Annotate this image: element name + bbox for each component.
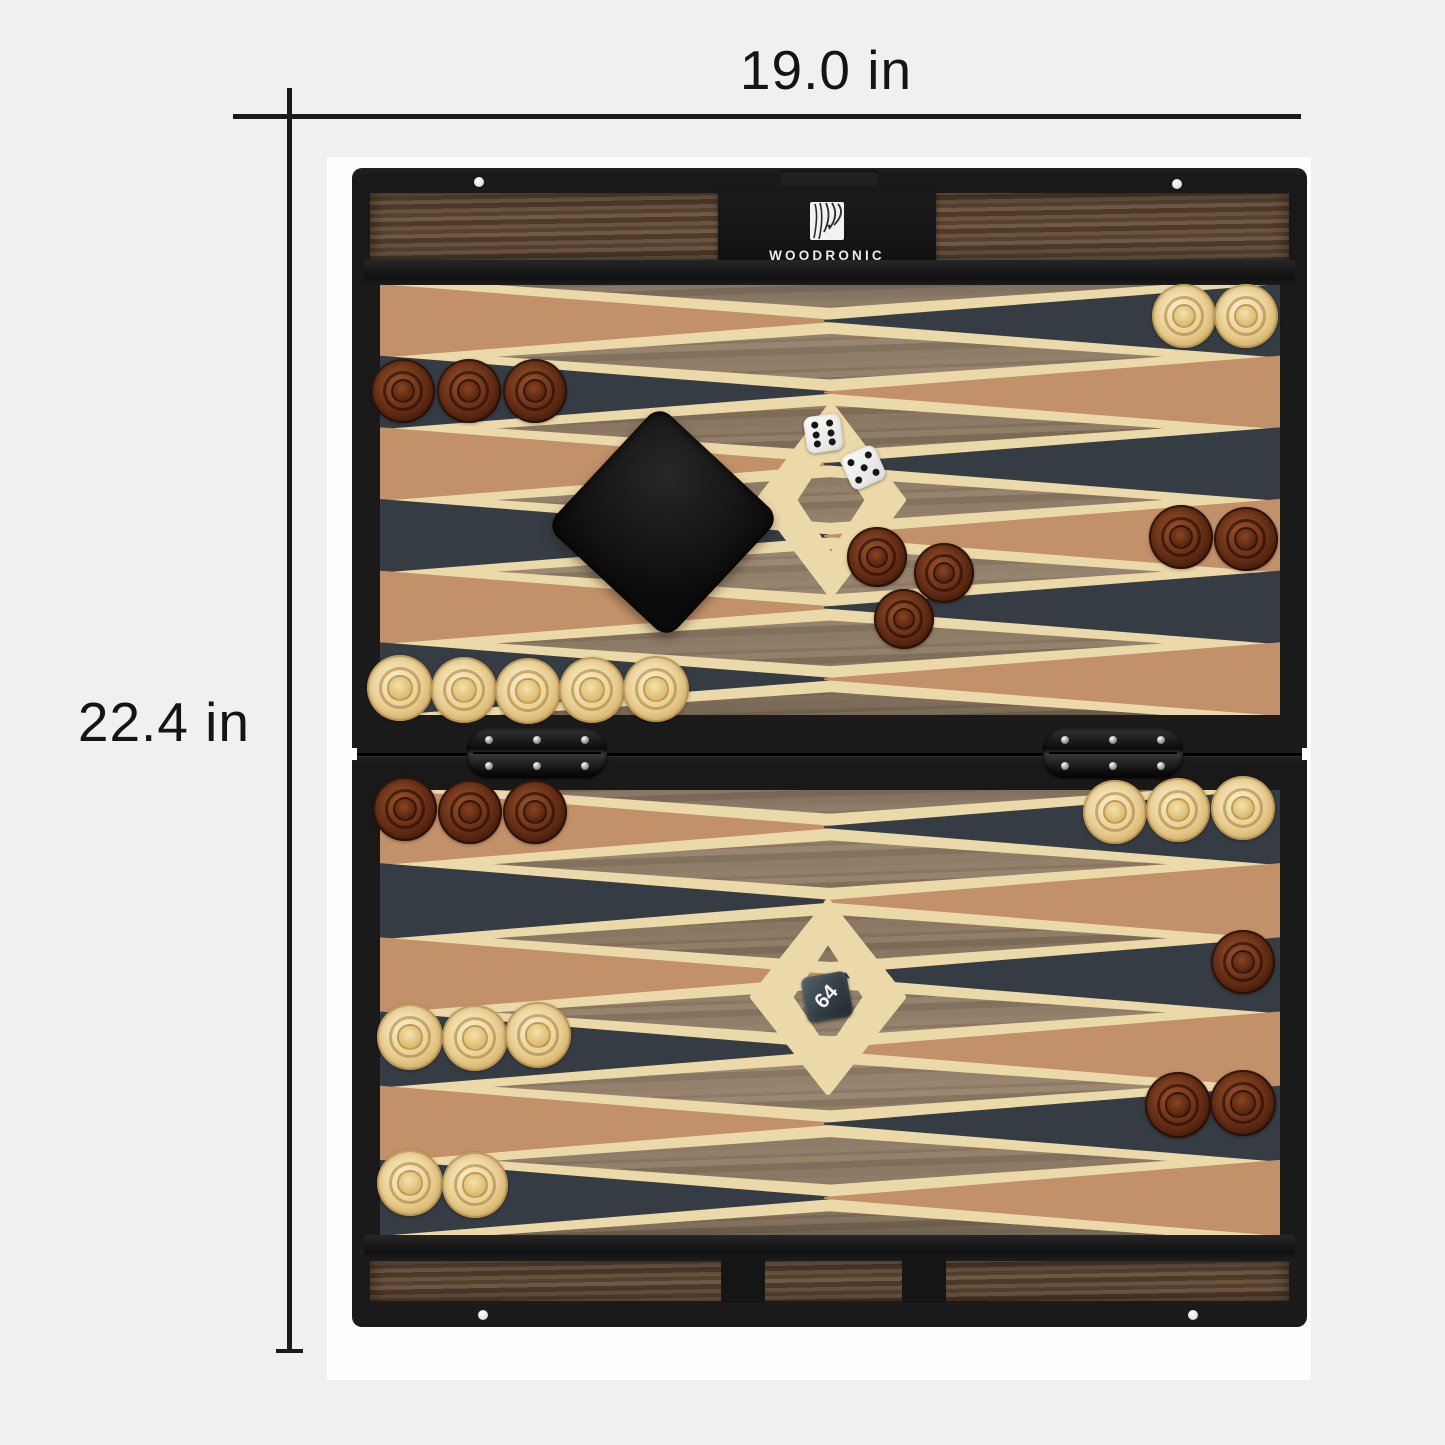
- checker-hub: [643, 676, 668, 701]
- checker-cream: [1152, 284, 1216, 348]
- checker-hub: [451, 677, 476, 702]
- hinge-screw: [1109, 736, 1117, 744]
- die-face-6: [802, 412, 844, 454]
- die-pip: [826, 428, 834, 436]
- frame-screw-dot: [1188, 1310, 1198, 1320]
- fold-seam-notch: [351, 748, 357, 760]
- die-pip: [810, 421, 818, 429]
- checker-cream: [495, 658, 561, 724]
- checker-brown: [1210, 1070, 1276, 1136]
- width-dimension-line: [233, 114, 1301, 119]
- checker-hub: [387, 675, 412, 700]
- checker-cream: [1214, 284, 1278, 348]
- doubling-cube-value: 64: [810, 980, 843, 1013]
- hinge-screw: [581, 762, 589, 770]
- checker-brown: [503, 780, 567, 844]
- checker-hub: [393, 797, 417, 821]
- die-pip: [813, 440, 821, 448]
- checker-hub: [523, 379, 547, 403]
- top-checker-rail: [364, 260, 1295, 285]
- checker-brown: [438, 780, 502, 844]
- hinge-screw: [1157, 762, 1165, 770]
- checker-brown: [1214, 507, 1278, 571]
- hinge-screw: [581, 736, 589, 744]
- checker-brown: [874, 589, 934, 649]
- checker-brown: [1211, 930, 1275, 994]
- hinge-screw: [485, 736, 493, 744]
- checker-hub: [457, 379, 481, 403]
- board-top-half: WOODRONIC: [352, 168, 1307, 755]
- checker-cream: [1146, 778, 1210, 842]
- checker-cream: [367, 655, 433, 721]
- hinge-screw: [1061, 762, 1069, 770]
- checker-hub: [462, 1025, 487, 1050]
- height-dimension-line: [287, 88, 292, 1353]
- checker-hub: [515, 678, 540, 703]
- width-dimension-label: 19.0 in: [646, 38, 1006, 102]
- checker-cream: [623, 656, 689, 722]
- checker-hub: [579, 677, 604, 702]
- checker-hub: [1166, 798, 1190, 822]
- die-pip: [846, 458, 855, 467]
- checker-cream: [442, 1152, 508, 1218]
- hinge-screw: [533, 736, 541, 744]
- hinge-screw: [1061, 736, 1069, 744]
- checker-brown: [847, 527, 907, 587]
- checker-cream: [442, 1005, 508, 1071]
- checker-hub: [1234, 527, 1258, 551]
- die-pip: [858, 462, 867, 471]
- hinge-screw: [485, 762, 493, 770]
- die-pip: [812, 430, 820, 438]
- checker-hub: [458, 800, 482, 824]
- checker-brown: [373, 777, 437, 841]
- bottom-storage-strip: [370, 1261, 1289, 1301]
- doubling-cube: 64: [800, 970, 853, 1023]
- checker-hub: [1231, 950, 1255, 974]
- checker-hub: [1165, 1092, 1190, 1117]
- checker-cream: [505, 1002, 571, 1068]
- checker-hub: [1230, 1090, 1255, 1115]
- fold-hinge: [467, 728, 607, 778]
- checker-brown: [914, 543, 974, 603]
- hinge-screw: [1109, 762, 1117, 770]
- checker-hub: [525, 1022, 550, 1047]
- frame-screw-dot: [478, 1310, 488, 1320]
- checker-cream: [377, 1004, 443, 1070]
- checker-cream: [559, 657, 625, 723]
- die-pip: [863, 450, 872, 459]
- checker-hub: [523, 800, 547, 824]
- checker-cream: [377, 1150, 443, 1216]
- top-playing-field: [380, 285, 1280, 715]
- checker-hub: [1172, 304, 1196, 328]
- checker-hub: [397, 1170, 422, 1195]
- frame-screw-dot: [474, 177, 484, 187]
- die-pip: [871, 467, 880, 476]
- checker-hub: [391, 379, 415, 403]
- checker-brown: [1149, 505, 1213, 569]
- product-image-canvas: 19.0 in 22.4 in WOODRONIC: [0, 0, 1445, 1445]
- checker-hub: [1103, 800, 1127, 824]
- checker-brown: [503, 359, 567, 423]
- checker-hub: [462, 1172, 487, 1197]
- fold-seam-notch: [1302, 748, 1308, 760]
- bottom-checker-rail: [364, 1235, 1295, 1260]
- checker-cream: [431, 657, 497, 723]
- hinge-screw: [1157, 736, 1165, 744]
- checker-hub: [397, 1024, 422, 1049]
- checker-cream: [1211, 776, 1275, 840]
- die-pip: [854, 475, 863, 484]
- fold-hinge: [1043, 728, 1183, 778]
- backgammon-board: WOODRONIC: [352, 168, 1307, 1327]
- checker-hub: [1231, 796, 1255, 820]
- checker-brown: [437, 359, 501, 423]
- brand-plaque: WOODRONIC: [718, 193, 936, 266]
- die-pip: [825, 418, 833, 426]
- checker-cream: [1083, 780, 1147, 844]
- carry-handle-recess: [779, 170, 879, 185]
- top-points-inlay: [380, 285, 1280, 715]
- checker-hub: [1234, 304, 1258, 328]
- checker-hub: [1169, 525, 1193, 549]
- hinge-screw: [533, 762, 541, 770]
- checker-brown: [371, 359, 435, 423]
- storage-divider: [902, 1255, 946, 1303]
- storage-divider: [721, 1255, 765, 1303]
- height-dimension-end-tick: [276, 1349, 303, 1353]
- height-dimension-label: 22.4 in: [10, 690, 250, 754]
- checker-brown: [1145, 1072, 1211, 1138]
- die-pip: [828, 438, 836, 446]
- frame-screw-dot: [1172, 179, 1182, 189]
- woodronic-logo-icon: [810, 202, 844, 240]
